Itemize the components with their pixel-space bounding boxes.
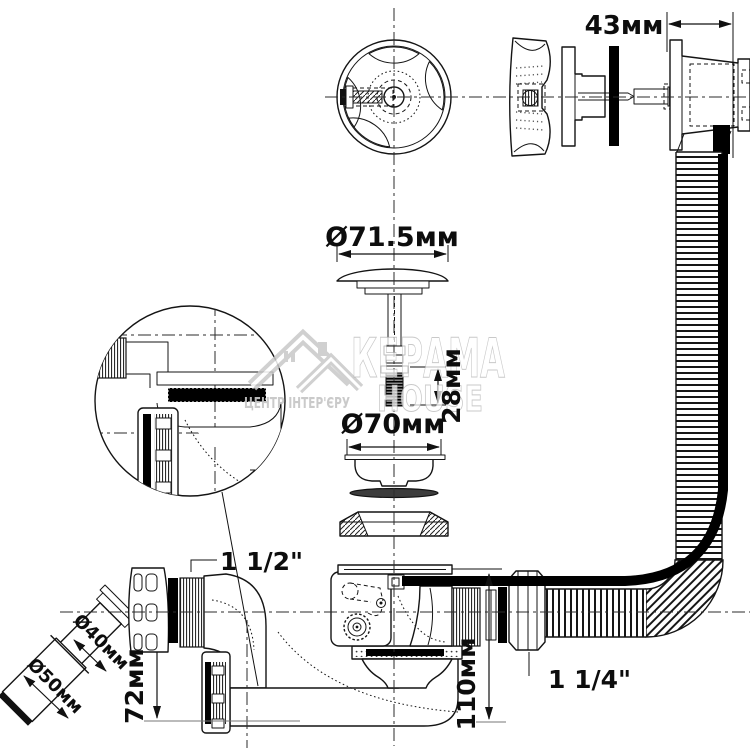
- dim-label-72mm: 72мм: [120, 648, 149, 724]
- watermark-tagline: ЦЕНТР ІНТЕР'ЄРУ: [244, 394, 350, 412]
- drain-inlet-nut: [129, 568, 204, 652]
- technical-drawing-bath-siphon: КЕРАМА HOUSE ЦЕНТР ІНТЕР'ЄРУ 43мм Ø71.5м…: [0, 0, 750, 750]
- dim-label-110mm: 110мм: [452, 637, 481, 730]
- waste-top-flange: [338, 565, 452, 574]
- dim-label-43mm: 43мм: [585, 11, 664, 41]
- waste-flange-section: [345, 455, 445, 486]
- dim-label-1-1-2in: 1 1/2": [220, 547, 303, 576]
- dim-label-1-1-4in: 1 1/4": [548, 665, 631, 694]
- dim-label-70mm: Ø70мм: [341, 409, 446, 440]
- trip-lever-box: [331, 572, 404, 646]
- overflow-gasket: [609, 46, 619, 146]
- drawing-svg: КЕРАМА HOUSE ЦЕНТР ІНТЕР'ЄРУ 43мм Ø71.5м…: [0, 0, 750, 750]
- dim-label-71-5mm: Ø71.5мм: [325, 222, 459, 253]
- corrugated-hose: [545, 152, 723, 637]
